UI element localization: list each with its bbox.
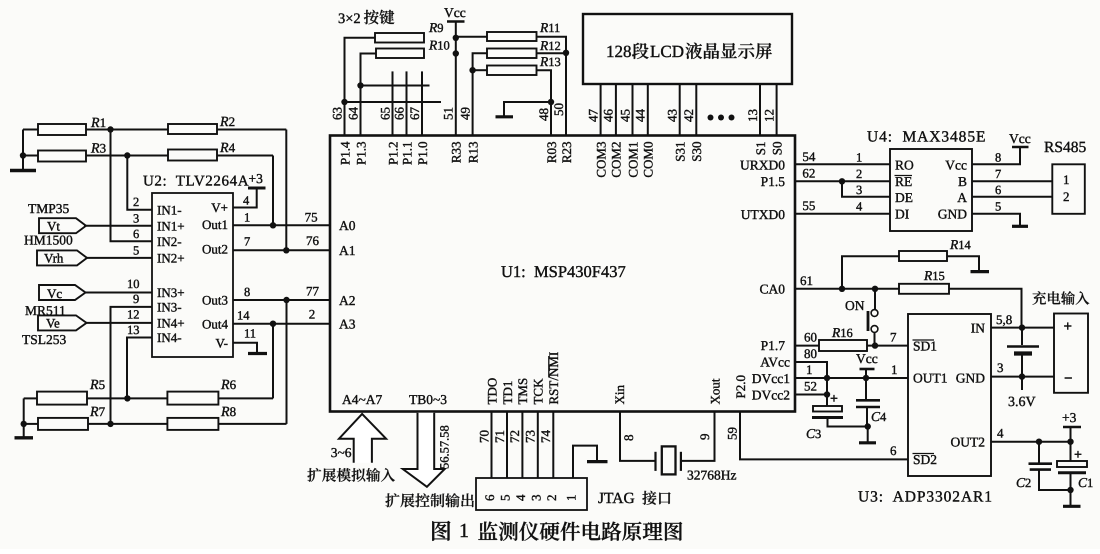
svg-text:C3: C3 bbox=[806, 426, 821, 441]
svg-text:AVcc: AVcc bbox=[760, 355, 790, 370]
svg-text:12: 12 bbox=[761, 109, 776, 122]
svg-text:A0: A0 bbox=[339, 218, 356, 233]
svg-text:3: 3 bbox=[133, 212, 139, 226]
svg-text:50: 50 bbox=[551, 103, 566, 116]
svg-text:V+: V+ bbox=[211, 200, 228, 215]
svg-text:−: − bbox=[1064, 371, 1073, 387]
svg-text:Xin: Xin bbox=[612, 385, 627, 405]
svg-text:U4: MAX3485E: U4: MAX3485E bbox=[867, 129, 986, 146]
svg-text:IN2-: IN2- bbox=[157, 234, 182, 249]
svg-text:1: 1 bbox=[244, 211, 250, 225]
svg-text:1: 1 bbox=[856, 151, 862, 165]
svg-text:DE: DE bbox=[895, 190, 913, 205]
svg-text:IN4+: IN4+ bbox=[157, 316, 185, 331]
svg-text:Vc: Vc bbox=[47, 286, 62, 301]
svg-text:Xout: Xout bbox=[707, 378, 722, 404]
svg-text:COM0: COM0 bbox=[641, 142, 656, 178]
svg-text:14: 14 bbox=[237, 309, 250, 323]
svg-text:TMS: TMS bbox=[515, 378, 530, 405]
svg-text:60: 60 bbox=[804, 330, 817, 345]
svg-text:73: 73 bbox=[523, 430, 538, 443]
svg-text:3~6: 3~6 bbox=[331, 445, 352, 460]
svg-text:R2: R2 bbox=[219, 114, 235, 130]
svg-text:OUT1: OUT1 bbox=[913, 371, 948, 386]
svg-text:8: 8 bbox=[621, 435, 636, 442]
svg-text:13: 13 bbox=[745, 109, 760, 122]
svg-text:Vt: Vt bbox=[47, 219, 60, 234]
svg-text:TD1: TD1 bbox=[500, 381, 515, 405]
svg-text:4: 4 bbox=[513, 494, 528, 501]
svg-text:61: 61 bbox=[800, 273, 813, 288]
svg-text:CA0: CA0 bbox=[759, 282, 785, 297]
svg-text:COM3: COM3 bbox=[593, 142, 608, 178]
svg-text:48: 48 bbox=[536, 108, 551, 121]
svg-text:2: 2 bbox=[309, 307, 316, 322]
svg-text:R8: R8 bbox=[220, 404, 236, 420]
svg-text:52: 52 bbox=[804, 379, 817, 394]
svg-text:6: 6 bbox=[133, 227, 139, 241]
svg-text:UTXD0: UTXD0 bbox=[741, 207, 785, 222]
svg-text:70: 70 bbox=[476, 430, 491, 443]
svg-text:8: 8 bbox=[995, 151, 1001, 165]
svg-text:6: 6 bbox=[482, 494, 497, 501]
svg-text:1: 1 bbox=[891, 362, 898, 377]
svg-text:P1.2: P1.2 bbox=[385, 142, 400, 165]
svg-text:+: + bbox=[830, 392, 838, 407]
svg-text:64: 64 bbox=[345, 107, 360, 121]
svg-text:R11: R11 bbox=[539, 20, 560, 35]
svg-text:IN3+: IN3+ bbox=[157, 285, 185, 300]
svg-text:S31: S31 bbox=[673, 142, 688, 162]
svg-text:2: 2 bbox=[133, 195, 139, 209]
svg-text:46: 46 bbox=[601, 109, 616, 123]
svg-text:2: 2 bbox=[1063, 189, 1070, 204]
svg-text:72: 72 bbox=[507, 430, 522, 443]
svg-text:1: 1 bbox=[564, 495, 579, 502]
svg-text:V-: V- bbox=[215, 335, 228, 350]
svg-text:IN1+: IN1+ bbox=[157, 219, 185, 234]
svg-text:OUT2: OUT2 bbox=[951, 434, 986, 449]
svg-text:IN1-: IN1- bbox=[157, 202, 182, 217]
svg-text:1: 1 bbox=[459, 520, 469, 542]
svg-text:C2: C2 bbox=[1016, 475, 1031, 490]
svg-text:R15: R15 bbox=[923, 268, 945, 283]
svg-text:R3: R3 bbox=[90, 141, 106, 157]
svg-text:+3: +3 bbox=[249, 171, 264, 186]
svg-text:3.6V: 3.6V bbox=[1008, 395, 1036, 410]
svg-text:55: 55 bbox=[802, 198, 815, 213]
svg-text:A2: A2 bbox=[339, 293, 356, 308]
svg-text:TSL253: TSL253 bbox=[22, 332, 67, 347]
svg-text:ON: ON bbox=[845, 298, 865, 313]
svg-text:65: 65 bbox=[377, 107, 392, 120]
svg-text:R33: R33 bbox=[449, 142, 464, 164]
svg-text:62: 62 bbox=[802, 166, 815, 181]
svg-text:A4~A7: A4~A7 bbox=[342, 392, 383, 407]
svg-text:SD2: SD2 bbox=[913, 452, 937, 467]
svg-text:47: 47 bbox=[585, 109, 600, 123]
svg-text:R9: R9 bbox=[428, 20, 444, 35]
svg-text:P1.0: P1.0 bbox=[415, 142, 430, 165]
svg-text:U3: ADP3302AR1: U3: ADP3302AR1 bbox=[858, 489, 993, 506]
svg-text:12: 12 bbox=[127, 308, 140, 322]
svg-text:3: 3 bbox=[997, 360, 1004, 375]
svg-text:IN3-: IN3- bbox=[157, 300, 182, 315]
svg-text:11: 11 bbox=[244, 327, 256, 341]
svg-text:P1.3: P1.3 bbox=[353, 142, 368, 165]
svg-text:49: 49 bbox=[457, 107, 472, 120]
svg-text:+3: +3 bbox=[1062, 410, 1077, 425]
svg-text:R5: R5 bbox=[89, 377, 105, 393]
svg-text:66: 66 bbox=[391, 107, 406, 121]
svg-text:6: 6 bbox=[995, 183, 1001, 197]
svg-text:4: 4 bbox=[243, 194, 250, 208]
svg-text:DVcc1: DVcc1 bbox=[752, 371, 790, 386]
svg-text:56.57.58: 56.57.58 bbox=[438, 425, 452, 469]
svg-text:80: 80 bbox=[804, 346, 817, 361]
svg-text:Out2: Out2 bbox=[202, 242, 228, 257]
svg-text:5: 5 bbox=[498, 495, 513, 502]
svg-text:4: 4 bbox=[997, 426, 1004, 441]
svg-text:51: 51 bbox=[441, 107, 456, 120]
svg-text:1: 1 bbox=[1063, 172, 1070, 187]
svg-text:IN: IN bbox=[971, 321, 985, 336]
svg-text:7: 7 bbox=[890, 330, 897, 345]
svg-text:R23: R23 bbox=[559, 142, 574, 164]
svg-text:8: 8 bbox=[244, 285, 250, 299]
svg-text:1: 1 bbox=[806, 362, 813, 377]
svg-text:9: 9 bbox=[697, 434, 712, 441]
svg-text:7: 7 bbox=[995, 167, 1001, 181]
svg-text:RE: RE bbox=[895, 174, 912, 189]
svg-text:RS485: RS485 bbox=[1044, 139, 1086, 156]
svg-text:R14: R14 bbox=[949, 237, 972, 252]
svg-text:C4: C4 bbox=[871, 409, 887, 424]
svg-text:P1.4: P1.4 bbox=[337, 141, 352, 165]
svg-text:7: 7 bbox=[244, 235, 250, 249]
svg-text:DVcc2: DVcc2 bbox=[752, 388, 790, 403]
svg-text:42: 42 bbox=[681, 109, 696, 122]
svg-text:75: 75 bbox=[305, 210, 318, 225]
svg-text:COM1: COM1 bbox=[625, 142, 640, 178]
svg-text:R4: R4 bbox=[219, 140, 236, 156]
svg-text:IN4-: IN4- bbox=[157, 330, 182, 345]
svg-text:77: 77 bbox=[306, 284, 320, 299]
svg-text:4: 4 bbox=[856, 200, 863, 214]
svg-text:10: 10 bbox=[127, 277, 140, 291]
svg-text:R03: R03 bbox=[544, 142, 559, 164]
svg-text:S30: S30 bbox=[689, 142, 704, 162]
svg-text:GND: GND bbox=[938, 207, 967, 222]
svg-text:Ve: Ve bbox=[46, 316, 60, 331]
svg-text:TDO: TDO bbox=[484, 378, 499, 405]
svg-text:9: 9 bbox=[133, 292, 139, 306]
svg-text:A: A bbox=[957, 190, 967, 205]
svg-text:Out1: Out1 bbox=[202, 217, 228, 232]
svg-text:P1.5: P1.5 bbox=[761, 174, 786, 189]
svg-text:TMP35: TMP35 bbox=[28, 201, 70, 216]
svg-text:Vcc: Vcc bbox=[945, 158, 967, 173]
svg-text:5: 5 bbox=[133, 244, 139, 258]
svg-text:B: B bbox=[958, 174, 967, 189]
svg-text:R7: R7 bbox=[89, 404, 106, 420]
svg-text:P1.1: P1.1 bbox=[399, 142, 414, 165]
svg-text:13: 13 bbox=[127, 323, 140, 337]
svg-text:3: 3 bbox=[856, 183, 862, 197]
svg-text:S0: S0 bbox=[769, 142, 784, 156]
svg-text:COM2: COM2 bbox=[609, 142, 624, 178]
svg-text:U1: MSP430F437: U1: MSP430F437 bbox=[501, 262, 626, 281]
svg-text:Out4: Out4 bbox=[202, 316, 229, 331]
svg-text:5: 5 bbox=[995, 200, 1001, 214]
svg-text:P2.0: P2.0 bbox=[733, 375, 748, 398]
svg-text:+: + bbox=[1064, 319, 1073, 335]
svg-text:C1: C1 bbox=[1078, 475, 1093, 490]
svg-text:S1: S1 bbox=[753, 142, 768, 156]
svg-text:A3: A3 bbox=[339, 317, 356, 332]
svg-text:U2: TLV2264A: U2: TLV2264A bbox=[143, 174, 249, 190]
svg-text:DI: DI bbox=[895, 207, 910, 222]
svg-text:2: 2 bbox=[544, 495, 559, 502]
svg-text:3×2: 3×2 bbox=[338, 11, 361, 27]
svg-text:43: 43 bbox=[665, 109, 680, 122]
svg-text:Vcc: Vcc bbox=[1009, 131, 1031, 146]
svg-text:JTAG: JTAG bbox=[598, 490, 635, 507]
svg-text:R6: R6 bbox=[220, 377, 237, 393]
svg-text:45: 45 bbox=[617, 109, 632, 122]
svg-text:74: 74 bbox=[538, 430, 553, 444]
svg-text:44: 44 bbox=[633, 109, 648, 123]
svg-text:R12: R12 bbox=[539, 38, 561, 53]
svg-text:6: 6 bbox=[890, 443, 897, 458]
svg-text:128: 128 bbox=[606, 42, 632, 61]
svg-text:5,8: 5,8 bbox=[996, 312, 1012, 327]
svg-text:HM1500: HM1500 bbox=[24, 233, 73, 248]
svg-text:2: 2 bbox=[856, 167, 862, 181]
svg-text:63: 63 bbox=[329, 107, 344, 120]
svg-text:Vcc: Vcc bbox=[444, 5, 466, 20]
svg-text:A1: A1 bbox=[339, 243, 356, 258]
svg-text:Out3: Out3 bbox=[202, 293, 228, 308]
svg-text:Vrh: Vrh bbox=[44, 251, 64, 266]
svg-text:76: 76 bbox=[306, 233, 320, 248]
svg-text:67: 67 bbox=[407, 107, 422, 121]
svg-text:R16: R16 bbox=[831, 325, 853, 340]
svg-text:RO: RO bbox=[895, 158, 914, 173]
svg-text:Vcc: Vcc bbox=[856, 351, 878, 366]
svg-text:R10: R10 bbox=[428, 38, 450, 53]
svg-text:SD1: SD1 bbox=[913, 339, 937, 354]
svg-text:54: 54 bbox=[802, 149, 816, 164]
svg-text:32768Hz: 32768Hz bbox=[687, 468, 737, 483]
svg-text:59: 59 bbox=[725, 427, 740, 440]
svg-text:TB0~3: TB0~3 bbox=[409, 392, 447, 407]
svg-text:P1.7: P1.7 bbox=[761, 338, 786, 353]
svg-text:LCD: LCD bbox=[650, 42, 684, 61]
svg-text:71: 71 bbox=[492, 430, 507, 443]
svg-text:TCK: TCK bbox=[531, 378, 546, 405]
svg-text:URXD0: URXD0 bbox=[740, 158, 785, 173]
svg-text:R13: R13 bbox=[465, 142, 480, 164]
svg-text:R13: R13 bbox=[539, 54, 561, 69]
svg-text:3: 3 bbox=[529, 495, 544, 502]
svg-text:IN2+: IN2+ bbox=[157, 251, 185, 266]
svg-text:GND: GND bbox=[956, 371, 985, 386]
